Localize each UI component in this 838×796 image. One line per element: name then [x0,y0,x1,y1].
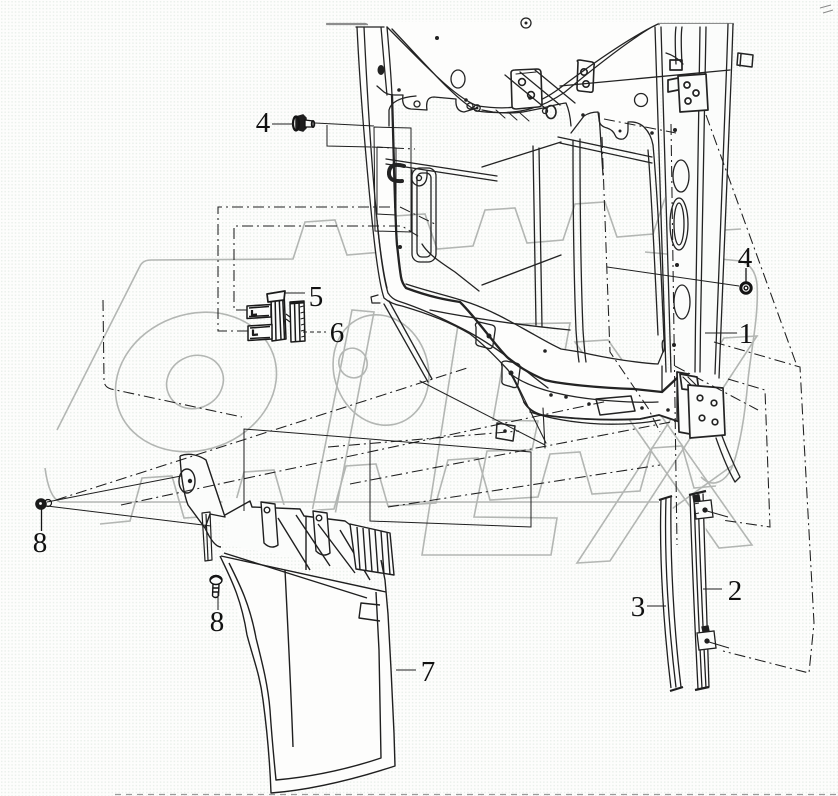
svg-text:5: 5 [309,281,324,313]
svg-text:3: 3 [631,591,646,623]
svg-text:1: 1 [739,318,754,350]
svg-text:4: 4 [256,107,271,139]
svg-text:4: 4 [738,242,753,274]
svg-text:8: 8 [33,527,48,559]
svg-text:6: 6 [330,317,345,349]
svg-text:7: 7 [421,656,436,688]
svg-text:8: 8 [210,606,225,638]
svg-text:2: 2 [728,575,743,607]
